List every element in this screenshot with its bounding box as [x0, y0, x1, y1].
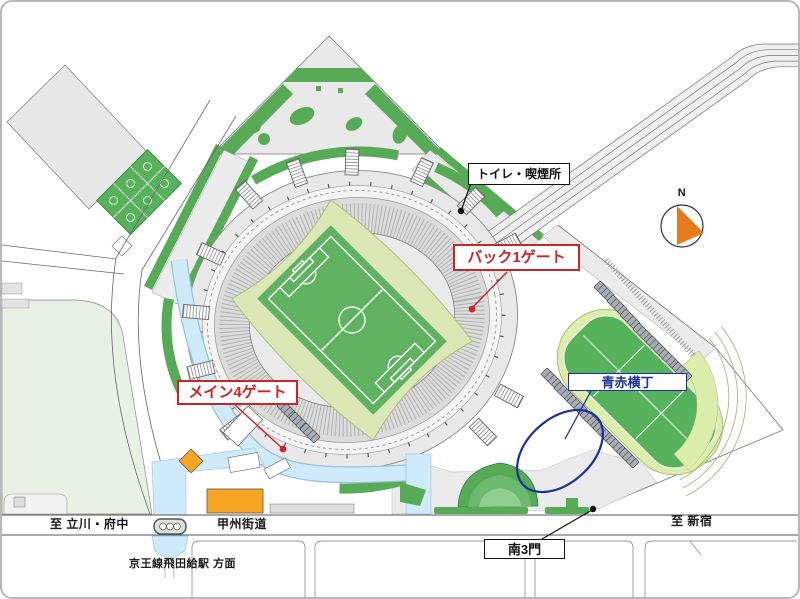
compass-north-label: N	[671, 188, 693, 199]
to-shinjuku-label: 至 新宿	[671, 515, 712, 527]
west-park	[2, 300, 152, 514]
back1-gate-label: バック1ゲート	[453, 244, 580, 271]
compass	[661, 205, 704, 247]
to-tachikawa-fuchu-label: 至 立川・府中	[50, 518, 129, 530]
toilet-smoking-label: トイレ・喫煙所	[468, 163, 570, 185]
main4-gate-label: メイン4ゲート	[177, 380, 298, 405]
site-map-svg	[2, 2, 800, 599]
keio-station-direction-label: 京王線飛田給駅 方面	[129, 559, 236, 570]
north-plaza	[212, 36, 446, 154]
south3-gate-label: 南3門	[484, 539, 565, 559]
stadium-access-map: トイレ・喫煙所 バック1ゲート メイン4ゲート 青赤横丁 南3門 至 立川・府中…	[0, 0, 800, 599]
koshu-kaido-label: 甲州街道	[217, 518, 267, 530]
small-plaza-diamond	[112, 236, 132, 256]
pedestrian-crossing-icon	[154, 519, 186, 534]
aoaka-yokocho-label: 青赤横丁	[568, 373, 687, 391]
left-edge-structures	[2, 283, 29, 308]
